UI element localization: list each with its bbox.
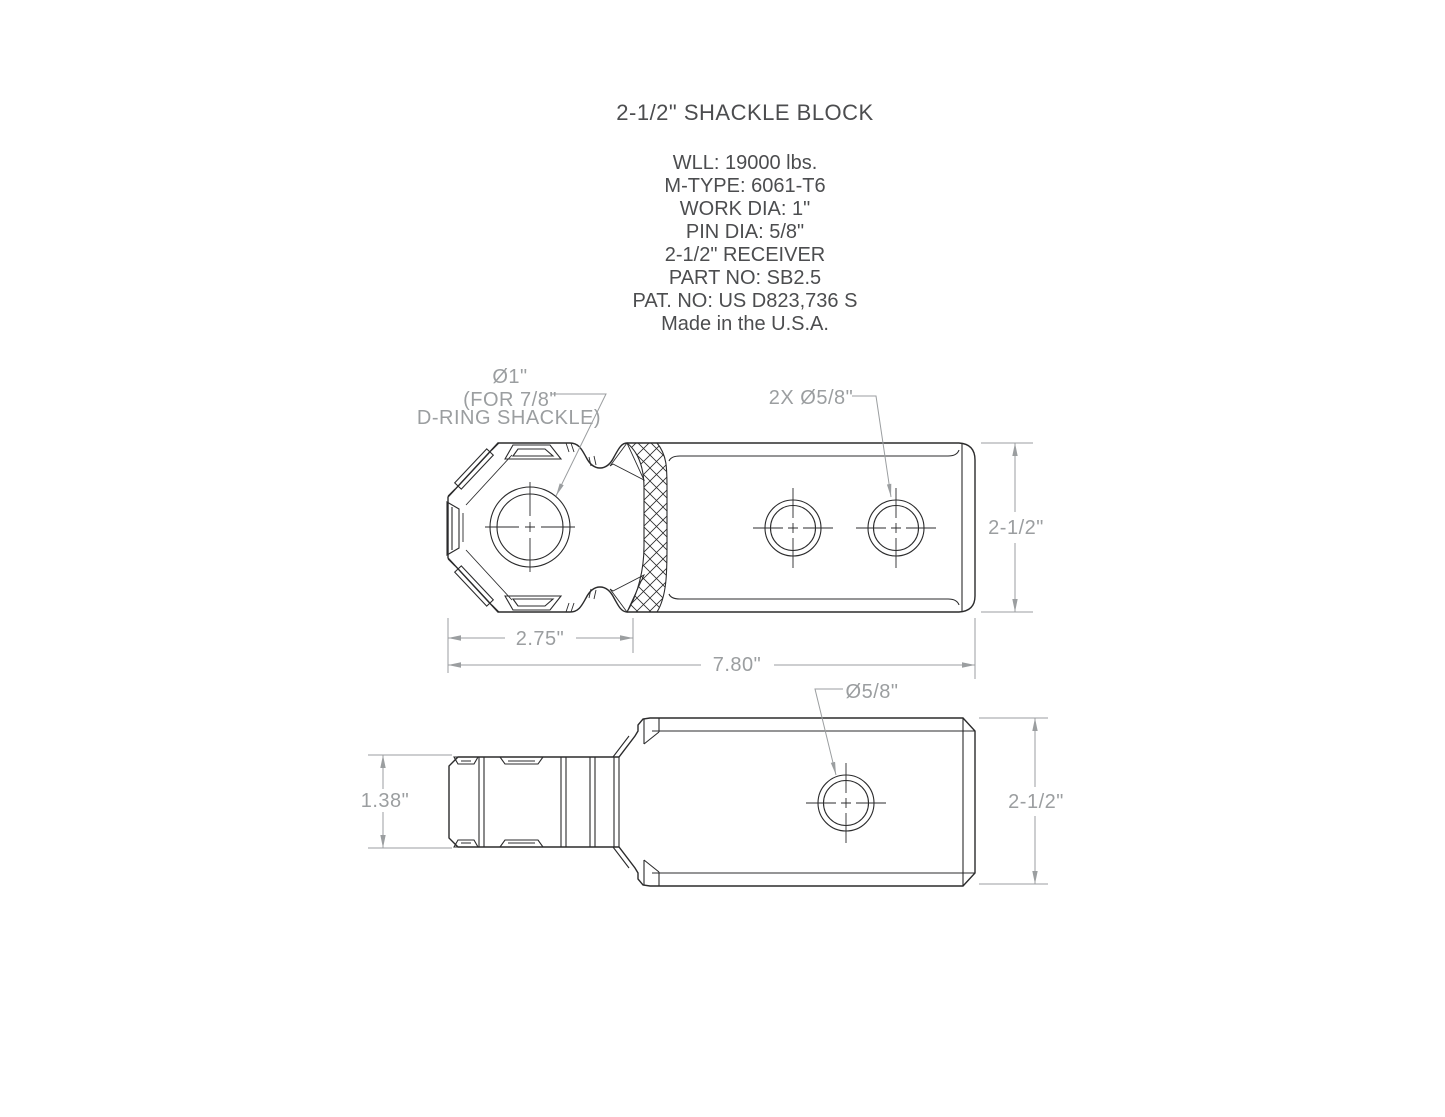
top-view bbox=[447, 443, 975, 612]
pin-hole-right-centerlines bbox=[856, 488, 936, 568]
mount-length-dimension-label: 2.75" bbox=[516, 628, 565, 650]
side-pin-hole-centerlines bbox=[806, 763, 886, 843]
side-view bbox=[449, 718, 975, 886]
mount-slot-bottom bbox=[505, 596, 561, 610]
side-height-dimension-label: 2-1/2" bbox=[1008, 791, 1064, 813]
collar-hatch bbox=[627, 443, 667, 612]
side-pin-hole bbox=[806, 763, 886, 843]
mount-slot-left bbox=[447, 502, 459, 555]
mount-slot-lower-left bbox=[455, 566, 494, 606]
dimension-lines bbox=[383, 443, 1035, 884]
mount-slot-upper-left bbox=[455, 449, 494, 489]
side-view-slots bbox=[454, 757, 543, 847]
overall-length-dimension-label: 7.80" bbox=[713, 654, 762, 676]
pin-hole-left bbox=[753, 488, 833, 568]
pin-hole-left-centerlines bbox=[753, 488, 833, 568]
shackle-hole bbox=[485, 482, 575, 572]
pin-holes-label: 2X Ø5/8" bbox=[769, 387, 853, 409]
mount-chamfer-lines bbox=[448, 443, 596, 612]
shackle-hole-label-line3: D-RING SHACKLE) bbox=[417, 407, 601, 429]
side-mount-height-dimension-label: 1.38" bbox=[361, 790, 410, 812]
shackle-hole-centerlines bbox=[485, 482, 575, 572]
extension-lines bbox=[368, 443, 1048, 884]
shackle-hole-label-line1: Ø1" bbox=[492, 366, 527, 388]
side-hole-label: Ø5/8" bbox=[846, 681, 899, 703]
mount-slot-top bbox=[505, 445, 561, 459]
side-view-inner-lines bbox=[479, 718, 975, 886]
pin-hole-right bbox=[856, 488, 936, 568]
side-view-outline bbox=[449, 718, 975, 886]
technical-drawing-svg: Ø1" (FOR 7/8" D-RING SHACKLE) 2X Ø5/8" 2… bbox=[0, 0, 1445, 1117]
top-height-dimension-label: 2-1/2" bbox=[988, 517, 1044, 539]
